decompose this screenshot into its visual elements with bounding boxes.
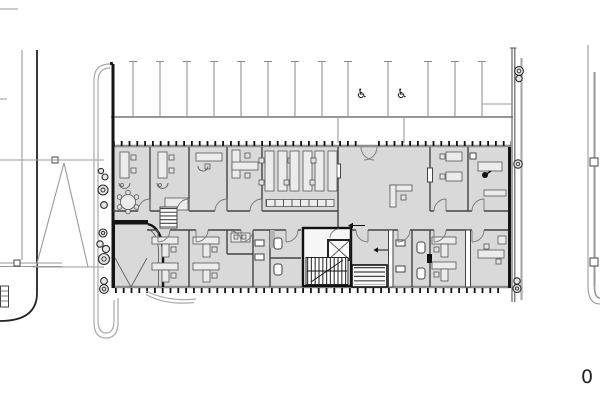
door-jamb (427, 254, 432, 263)
floor-plan-drawing: ♿ ♿ (0, 0, 600, 400)
fence-cap (110, 62, 113, 65)
sink (396, 266, 405, 272)
double-wall (466, 230, 471, 287)
door-frame (428, 168, 433, 182)
secondary-stair (352, 265, 387, 287)
site-edge-marks (0, 9, 18, 99)
parking-stripes (133, 62, 482, 117)
site-left-structure (0, 9, 104, 321)
site-wall-end (0, 263, 62, 267)
column-marker (590, 158, 598, 166)
property-line-right (510, 48, 523, 302)
toilet (417, 268, 425, 279)
shelf (484, 190, 506, 196)
entrance-walkway (338, 117, 404, 143)
small-exterior-stair (1, 286, 9, 307)
west-wall-fence (112, 64, 115, 222)
main-stair (306, 258, 348, 285)
accessible-parking-icon: ♿ (356, 87, 368, 102)
scale-zero-label: 0 (581, 366, 593, 388)
meeting-table (121, 195, 136, 210)
toilet (417, 242, 425, 253)
column-marker (590, 258, 598, 266)
sink (255, 254, 264, 260)
toilet (274, 238, 282, 249)
bollards-left (97, 168, 110, 293)
small-stair (160, 207, 177, 228)
ramp-triangle (33, 163, 104, 267)
sink (255, 240, 264, 246)
cabinet-row (266, 200, 334, 207)
parking-area: ♿ ♿ (111, 62, 513, 144)
column-marker (14, 260, 20, 266)
toilet (274, 264, 282, 275)
east-wall (508, 147, 511, 288)
site-curb-curve (0, 50, 37, 321)
floor-plan-canvas: ♿ ♿ (0, 0, 600, 400)
double-wall (389, 230, 394, 287)
accessible-parking-icon: ♿ (396, 87, 408, 102)
neighbor-structure-right (588, 45, 600, 304)
